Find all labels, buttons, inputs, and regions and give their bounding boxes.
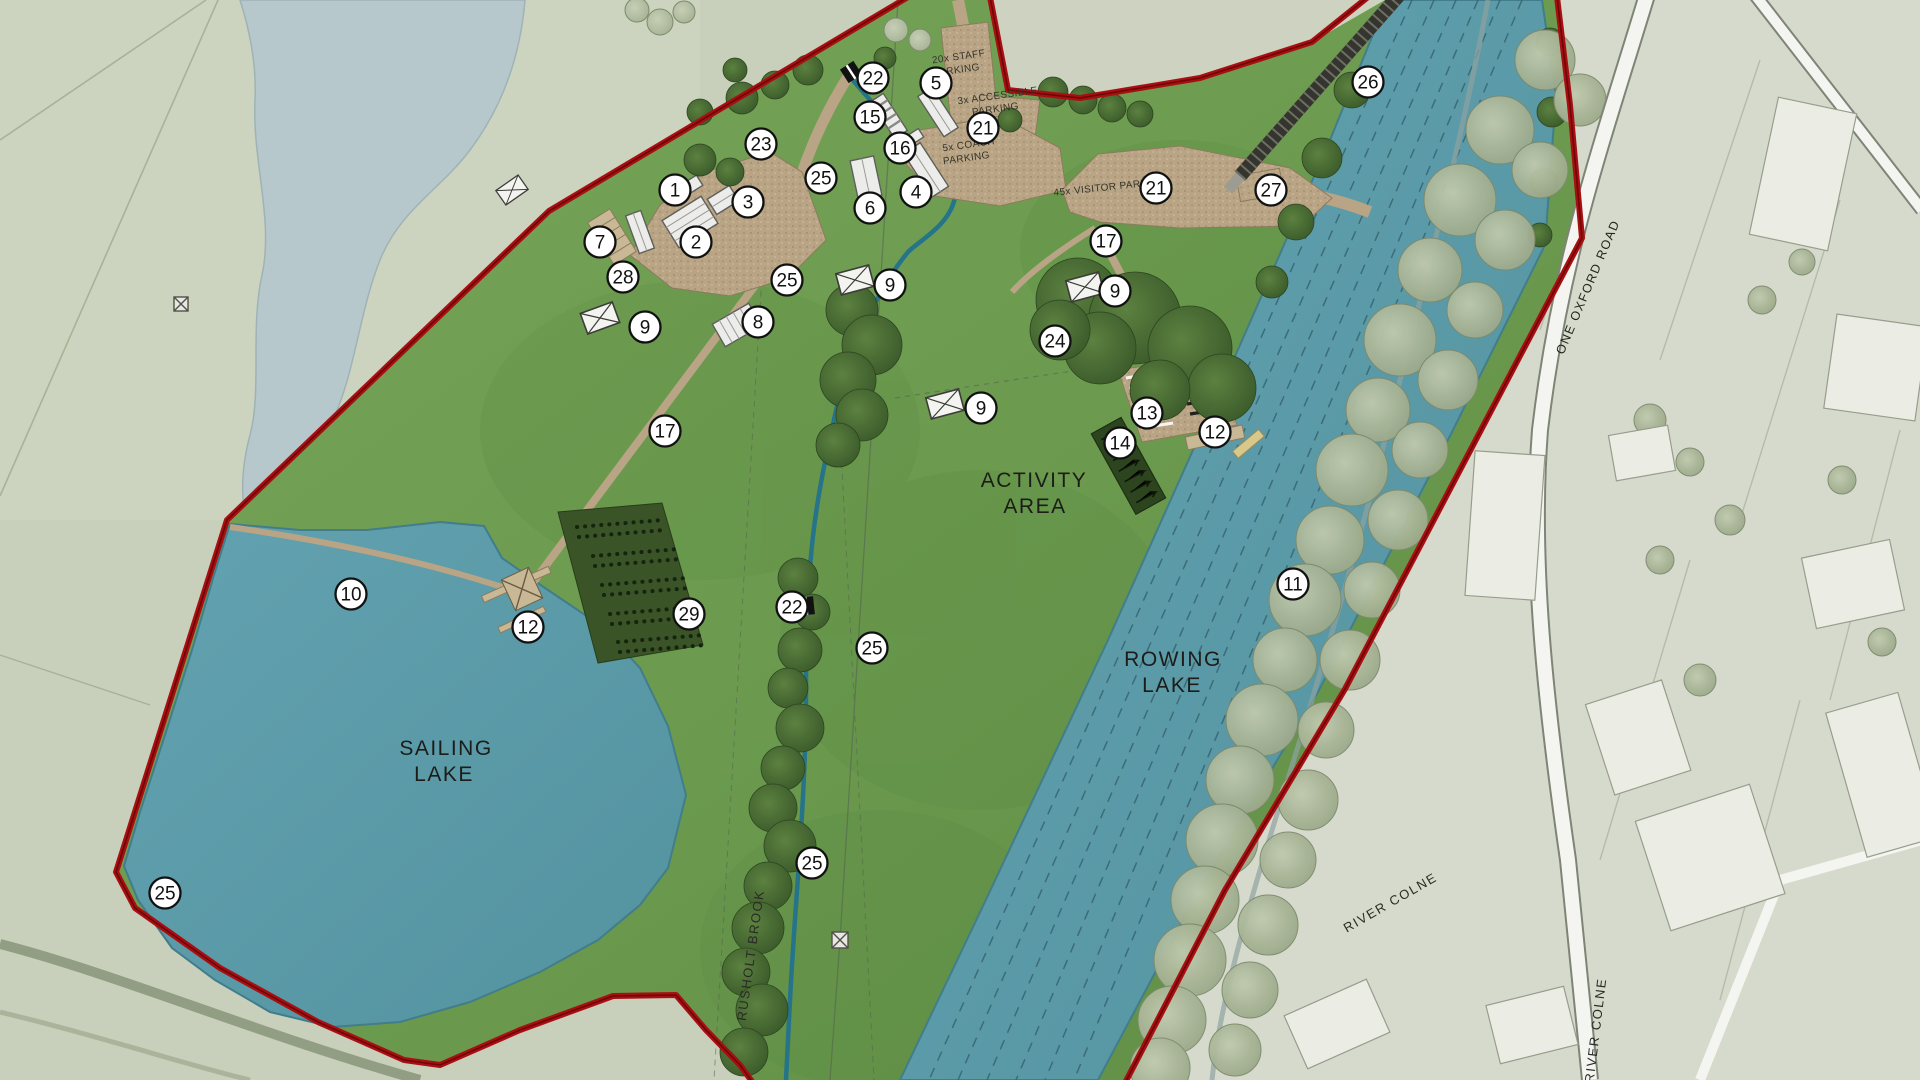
svg-text:9: 9 bbox=[640, 318, 651, 339]
activity-area-label: AREA bbox=[1003, 495, 1066, 518]
site-marker-23: 23 bbox=[746, 129, 777, 160]
site-marker-9: 9 bbox=[966, 393, 997, 424]
svg-text:25: 25 bbox=[776, 271, 797, 292]
activity-area-label: ACTIVITY bbox=[981, 469, 1088, 492]
site-marker-4: 4 bbox=[901, 177, 932, 208]
svg-text:9: 9 bbox=[885, 276, 896, 297]
svg-text:21: 21 bbox=[1145, 179, 1166, 200]
site-marker-24: 24 bbox=[1040, 326, 1071, 357]
sailing-lake-label: SAILING bbox=[399, 737, 492, 760]
svg-text:23: 23 bbox=[750, 135, 771, 156]
site-marker-26: 26 bbox=[1353, 67, 1384, 98]
site-marker-25: 25 bbox=[806, 163, 837, 194]
site-marker-2: 2 bbox=[681, 227, 712, 258]
svg-text:14: 14 bbox=[1109, 434, 1131, 455]
site-marker-5: 5 bbox=[921, 68, 952, 99]
site-marker-9: 9 bbox=[1100, 276, 1131, 307]
sailing-lake-label: LAKE bbox=[414, 763, 474, 786]
site-marker-25: 25 bbox=[797, 848, 828, 879]
site-marker-25: 25 bbox=[772, 265, 803, 296]
svg-text:1: 1 bbox=[670, 181, 681, 202]
site-marker-17: 17 bbox=[1091, 226, 1122, 257]
site-marker-15: 15 bbox=[855, 102, 886, 133]
svg-text:25: 25 bbox=[154, 884, 175, 905]
site-marker-9: 9 bbox=[630, 312, 661, 343]
svg-text:28: 28 bbox=[612, 268, 633, 289]
site-marker-8: 8 bbox=[743, 307, 774, 338]
site-marker-29: 29 bbox=[674, 599, 705, 630]
site-marker-11: 11 bbox=[1278, 569, 1309, 600]
svg-text:22: 22 bbox=[862, 69, 883, 90]
svg-text:29: 29 bbox=[678, 605, 699, 626]
site-marker-25: 25 bbox=[857, 633, 888, 664]
site-marker-27: 27 bbox=[1256, 175, 1287, 206]
svg-text:25: 25 bbox=[861, 639, 882, 660]
site-marker-12: 12 bbox=[513, 612, 544, 643]
site-marker-10: 10 bbox=[336, 579, 367, 610]
svg-text:11: 11 bbox=[1283, 575, 1303, 596]
svg-text:3: 3 bbox=[743, 193, 754, 214]
svg-text:17: 17 bbox=[654, 422, 675, 443]
site-marker-3: 3 bbox=[733, 187, 764, 218]
svg-text:25: 25 bbox=[801, 854, 822, 875]
svg-text:25: 25 bbox=[810, 169, 831, 190]
site-marker-9: 9 bbox=[875, 270, 906, 301]
site-marker-21: 21 bbox=[968, 113, 999, 144]
svg-text:24: 24 bbox=[1044, 332, 1066, 353]
site-marker-21: 21 bbox=[1141, 173, 1172, 204]
svg-text:2: 2 bbox=[691, 233, 702, 254]
svg-text:21: 21 bbox=[972, 119, 993, 140]
rowing-lake-label: ROWING bbox=[1124, 648, 1222, 671]
svg-text:16: 16 bbox=[889, 139, 910, 160]
site-marker-28: 28 bbox=[608, 262, 639, 293]
site-marker-22: 22 bbox=[777, 592, 808, 623]
svg-text:12: 12 bbox=[1204, 423, 1225, 444]
svg-text:17: 17 bbox=[1095, 232, 1116, 253]
svg-text:8: 8 bbox=[753, 313, 764, 334]
site-marker-7: 7 bbox=[585, 227, 616, 258]
site-marker-16: 16 bbox=[885, 133, 916, 164]
masterplan-map: SAILING LAKE ROWING LAKE ACTIVITY AREA R… bbox=[0, 0, 1920, 1080]
svg-text:6: 6 bbox=[865, 199, 876, 220]
svg-text:7: 7 bbox=[595, 233, 606, 254]
site-marker-6: 6 bbox=[855, 193, 886, 224]
svg-text:10: 10 bbox=[340, 585, 361, 606]
site-marker-22: 22 bbox=[858, 63, 889, 94]
svg-text:27: 27 bbox=[1260, 181, 1281, 202]
svg-text:5: 5 bbox=[931, 74, 942, 95]
site-marker-13: 13 bbox=[1132, 398, 1163, 429]
svg-text:26: 26 bbox=[1357, 73, 1378, 94]
site-marker-17: 17 bbox=[650, 416, 681, 447]
svg-text:15: 15 bbox=[859, 108, 880, 129]
site-marker-25: 25 bbox=[150, 878, 181, 909]
svg-text:4: 4 bbox=[911, 183, 922, 204]
site-marker-14: 14 bbox=[1105, 428, 1136, 459]
rowing-lake-label: LAKE bbox=[1142, 674, 1202, 697]
svg-text:9: 9 bbox=[1110, 282, 1121, 303]
site-marker-12: 12 bbox=[1200, 417, 1231, 448]
svg-text:12: 12 bbox=[517, 618, 538, 639]
svg-text:13: 13 bbox=[1136, 404, 1157, 425]
svg-text:22: 22 bbox=[781, 598, 802, 619]
svg-text:9: 9 bbox=[976, 399, 987, 420]
site-marker-1: 1 bbox=[660, 175, 691, 206]
